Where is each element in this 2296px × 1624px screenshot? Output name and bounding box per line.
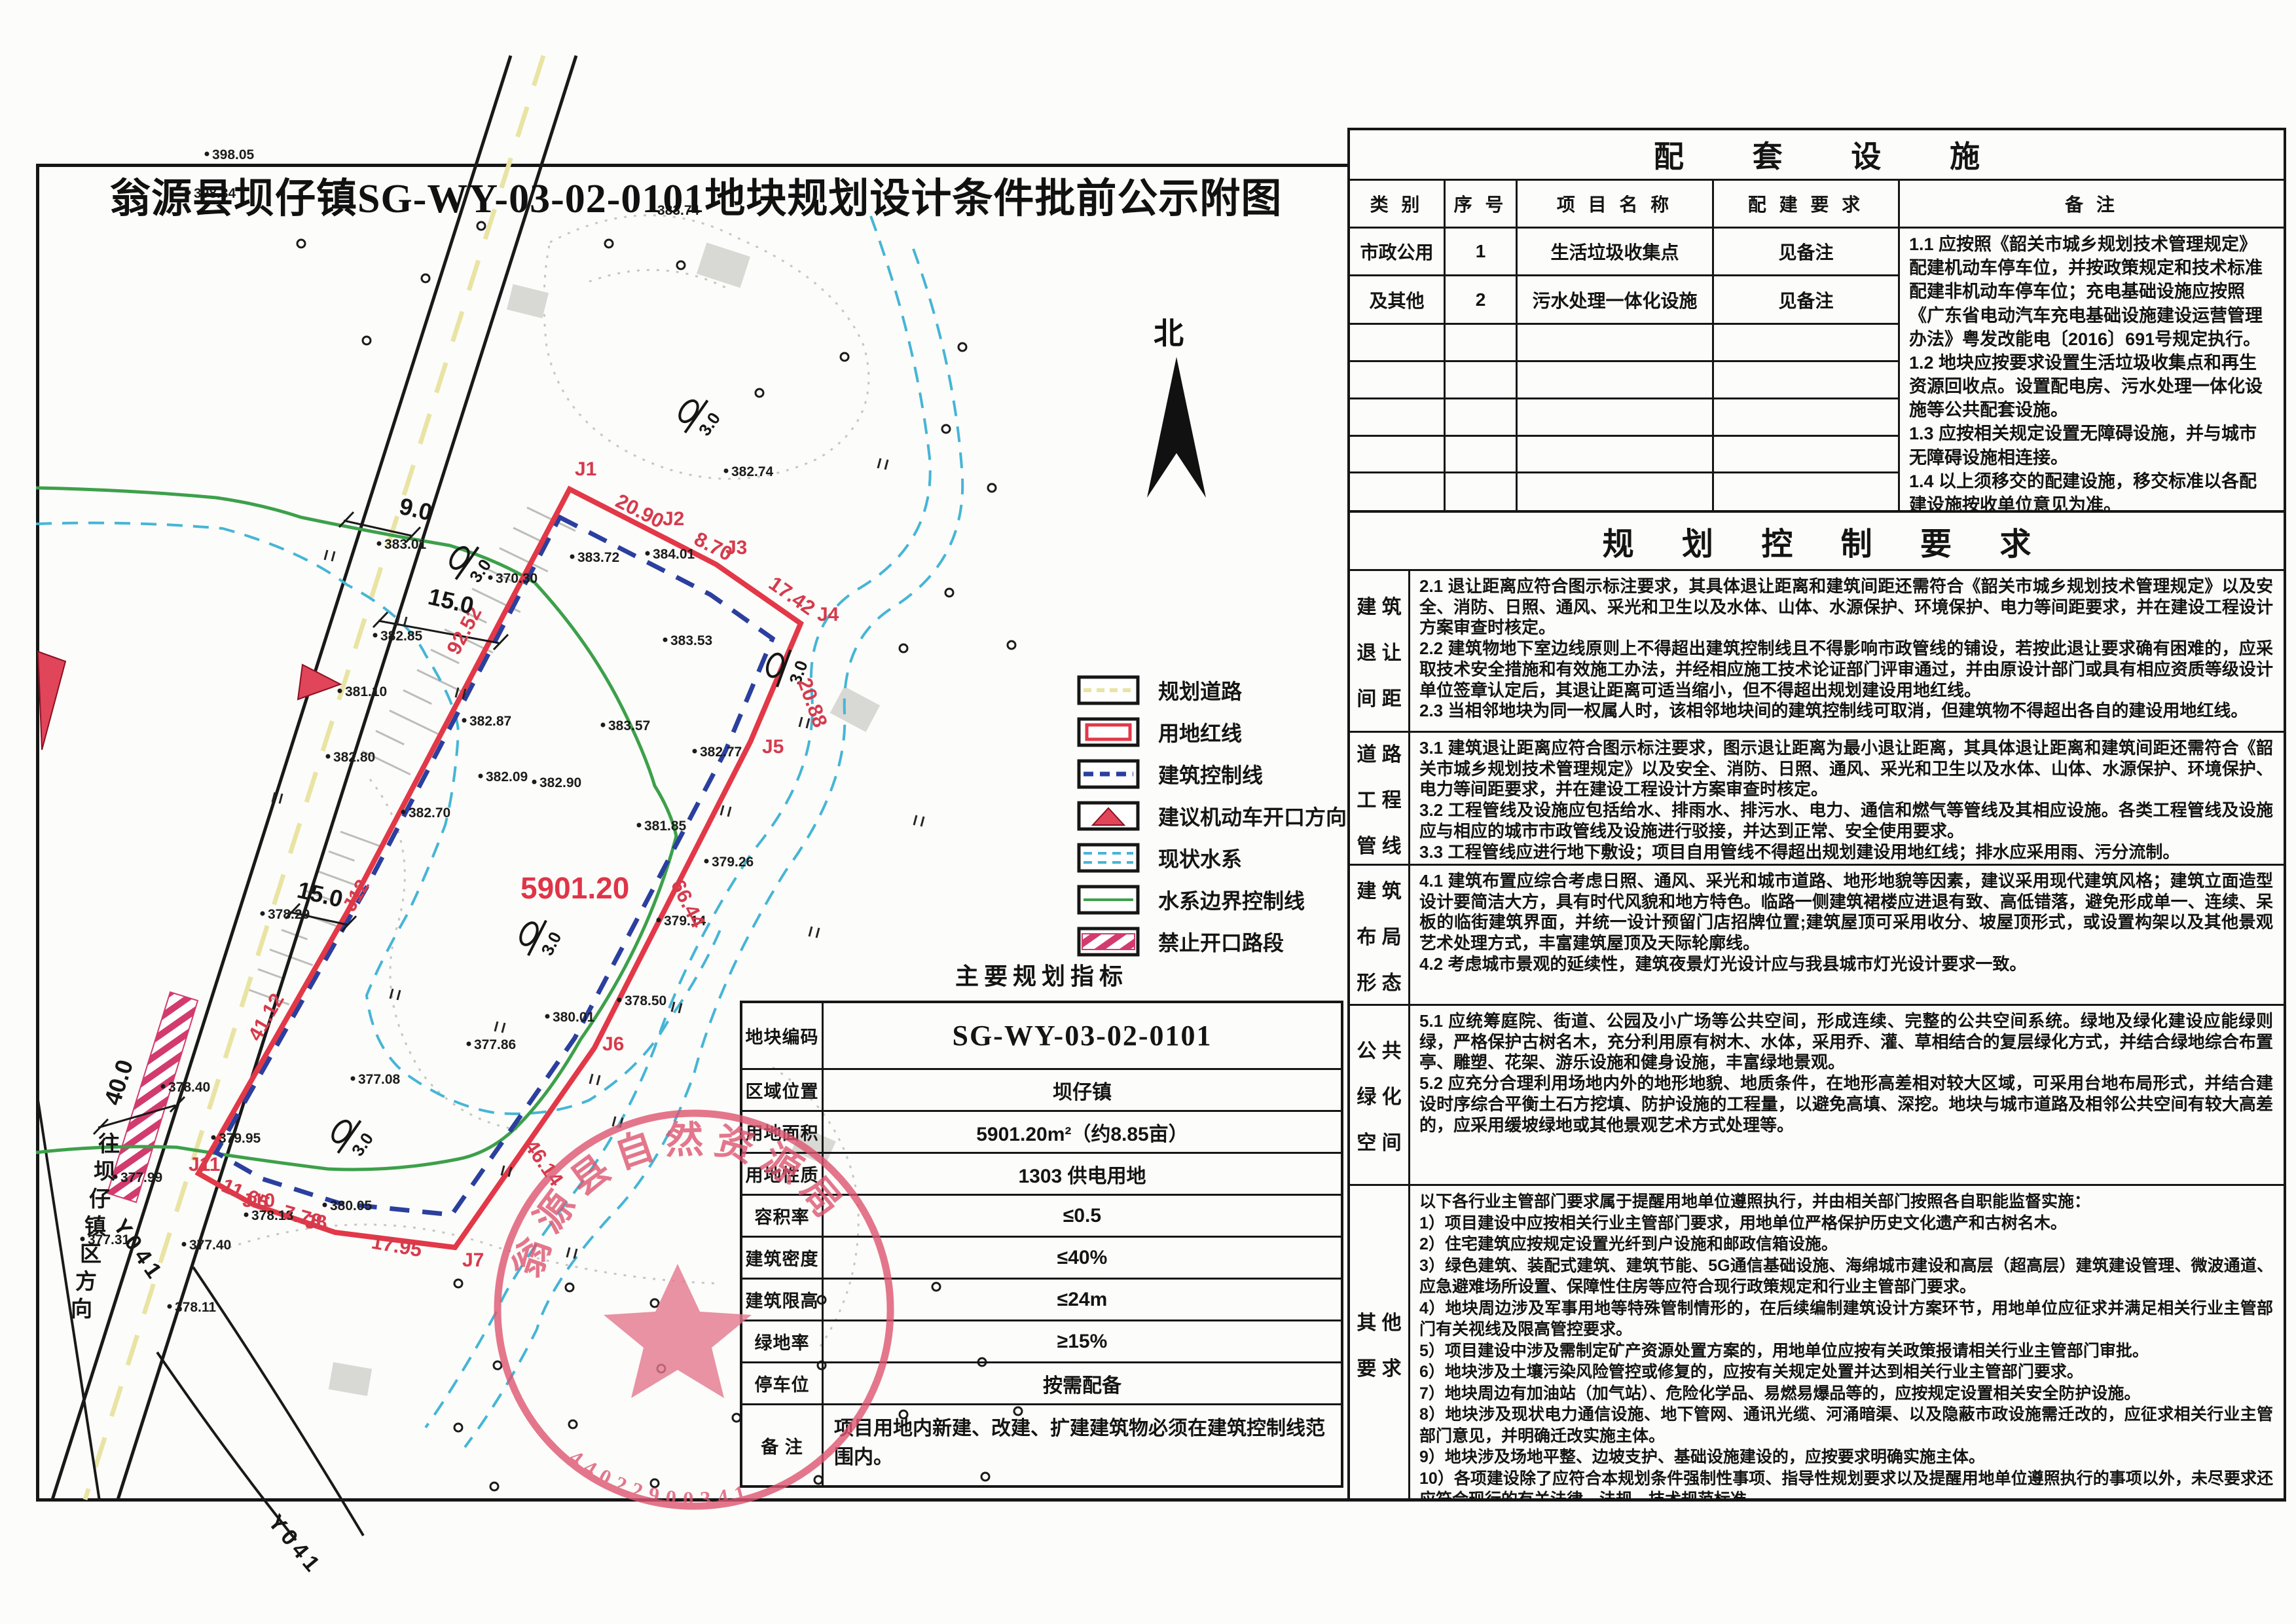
elevation-value: 383.72 <box>577 550 619 565</box>
elevation-value: 382.85 <box>380 629 423 644</box>
survey-dot <box>677 261 685 269</box>
requirement-paragraph: 9）地块涉及场地平整、边坡支护、基础设施建设的，应按要求明确实施主体。 <box>1419 1447 2273 1468</box>
north-label: 北 <box>1154 316 1184 350</box>
elevation-dot <box>570 555 575 559</box>
section-name-line: 管 线 <box>1357 830 1401 858</box>
grass-mark <box>590 1074 600 1085</box>
facility-empty-cell <box>1714 325 1900 362</box>
road-dimension: 9.0 <box>397 492 435 526</box>
setback-tick <box>777 650 791 687</box>
facility-empty-cell <box>1714 362 1900 399</box>
setback-value: 3.0 <box>348 1129 377 1160</box>
legend-label: 建议机动车开口方向 <box>1158 801 1347 831</box>
legend-item: 水系边界控制线 <box>1077 879 1347 921</box>
survey-dot <box>454 1424 462 1431</box>
facility-empty-cell <box>1518 399 1714 437</box>
elevation-dot <box>373 633 378 638</box>
parcel-area-label: 5901.20 <box>520 871 629 905</box>
hatch-symbol <box>1082 934 1135 950</box>
facilities-header: 备 注 <box>1900 181 2284 229</box>
page-title: 翁源县坝仔镇SG-WY-03-02-0101地块规划设计条件批前公示附图 <box>110 165 1354 224</box>
elevation-labels: 398.05398.34383.74382.74383.01383.72384.… <box>81 147 774 1315</box>
requirement-paragraph: 3.1 建筑退让距离应符合图示标注要求，图示退让距离为最小退让距离，其具体退让距… <box>1419 738 2273 800</box>
planned-road <box>38 56 576 1540</box>
elevation-value: 382.87 <box>469 714 511 729</box>
elevation-value: 383.57 <box>608 718 650 733</box>
requirements-table: 建 筑退 让间 距2.1 退让距离应符合图示标注要求，其具体退让距离和建筑间距还… <box>1350 571 2284 1501</box>
facility-name: 污水处理一体化设施 <box>1518 276 1714 325</box>
setback-marker: 3.0 <box>325 1111 381 1167</box>
facilities-notes: 1.1 应按照《韶关市城乡规划技术管理规定》配建机动车停车位，并按政策规定和技术… <box>1900 229 2284 510</box>
setback-marker: 3.0 <box>443 538 499 593</box>
legend-symbol-cyandash <box>1077 842 1140 874</box>
legend-item: 规划道路 <box>1077 669 1347 711</box>
facility-empty-cell <box>1518 437 1714 473</box>
requirement-section-name: 道 路工 程管 线 <box>1350 733 1410 866</box>
bluedash-legend-icon <box>1077 758 1140 790</box>
requirement-paragraph: 2）住宅建筑应按规定设置光纤到户设施和邮政信箱设施。 <box>1419 1234 2273 1255</box>
elevation-dot <box>467 1042 471 1046</box>
setback-value: 3.0 <box>785 658 812 687</box>
facilities-note-paragraph: 1.1 应按照《韶关市城乡规划技术管理规定》配建机动车停车位，并按政策规定和技术… <box>1909 232 2274 351</box>
slope-stroke <box>403 690 431 704</box>
elevation-dot <box>601 723 606 728</box>
requirement-paragraph: 5）项目建设中涉及需制定矿产资源处置方案的，用地单位应按有关政策报请相关行业主管… <box>1419 1340 2273 1362</box>
requirement-section-name: 公 共绿 化空 间 <box>1350 1006 1410 1186</box>
setback-tick <box>528 921 546 955</box>
setback-value: 3.0 <box>695 409 724 439</box>
elevation-value: 370.30 <box>496 571 538 586</box>
section-name-line: 建 筑 <box>1357 875 1401 904</box>
edge-dimension: 66.44 <box>666 876 710 932</box>
slope-stroke <box>500 548 548 572</box>
elevation-dot <box>261 912 265 916</box>
facility-empty-cell <box>1350 399 1446 437</box>
slope-stroke <box>486 568 514 582</box>
survey-dot <box>945 589 953 597</box>
indicator-label: 停车位 <box>742 1363 824 1405</box>
elevation-dot <box>401 810 406 815</box>
elevation-value: 379.26 <box>712 855 754 870</box>
greenline-legend-icon <box>1077 884 1140 915</box>
requirement-paragraph: 2.2 建筑物地下室边线原则上不得超出建筑控制线且不得影响市政管线的铺设，若按此… <box>1419 638 2273 701</box>
section-name-line: 空 间 <box>1357 1126 1401 1155</box>
requirement-paragraph: 10）各项建设除了应符合本规划条件强制性事项、指导性规划要求以及提醒用地单位遵照… <box>1419 1468 2273 1502</box>
slope-hatch <box>246 507 575 1005</box>
elevation-value: 378.18 <box>251 1208 294 1223</box>
vertex-label: J12 <box>338 876 374 915</box>
no-opening-hatch <box>107 992 198 1202</box>
elevation-value: 382.74 <box>731 464 774 479</box>
survey-dot <box>605 240 613 248</box>
svg-text:44022900341: 44022900341 <box>564 1446 756 1512</box>
road-code-label: Y041 <box>263 1510 327 1580</box>
north-arrow: 北 <box>1147 316 1206 498</box>
grass-mark <box>613 1116 623 1128</box>
slope-stroke <box>317 871 360 887</box>
survey-dot <box>494 1361 501 1369</box>
facilities-header: 配 建 要 求 <box>1714 181 1900 229</box>
vertex-label: J5 <box>762 736 784 758</box>
road-dimension: 40.0 <box>99 1056 139 1108</box>
grass-mark <box>272 792 282 803</box>
facility-class: 及其他 <box>1350 276 1446 325</box>
facility-empty-cell <box>1446 325 1518 362</box>
grass-mark <box>914 815 924 826</box>
indicator-label: 容积率 <box>742 1196 824 1238</box>
survey-dot <box>566 1283 574 1291</box>
requirement-paragraph: 3.2 工程管线及设施应包括给水、排雨水、排污水、电力、通信和燃气等管线及其相应… <box>1419 800 2273 841</box>
facility-empty-cell <box>1350 325 1446 362</box>
facilities-note-paragraph: 1.4 以上须移交的配建设施，移交标准以各配建设施按收单位意见为准。 <box>1909 470 2274 517</box>
facility-no: 2 <box>1446 276 1518 325</box>
survey-dot <box>841 353 848 361</box>
grass-mark <box>799 717 809 728</box>
slope-stroke <box>305 891 331 900</box>
facility-empty-cell <box>1350 473 1446 510</box>
requirement-paragraph: 8）地块涉及现状电力通信设施、地下管网、通讯光缆、河涌暗渠、以及隐蔽市政设施需迁… <box>1419 1404 2273 1447</box>
elevation-value: 383.01 <box>384 537 427 552</box>
indicator-label: 用地性质 <box>742 1154 824 1196</box>
slope-stroke <box>417 670 465 693</box>
indicator-value: 按需配备 <box>824 1363 1341 1405</box>
slope-stroke <box>258 969 283 978</box>
indicator-value: ≤0.5 <box>824 1196 1341 1238</box>
section-name-line: 形 态 <box>1357 967 1401 995</box>
dimension-lines <box>94 512 508 1134</box>
setback-value: 3.0 <box>537 929 565 959</box>
legend-symbol-road <box>1077 674 1140 706</box>
elevation-value: 381.10 <box>345 684 387 699</box>
facilities-note-paragraph: 1.3 应按相关规定设置无障碍设施，并与城市无障碍设施相连接。 <box>1909 422 2274 469</box>
survey-dot <box>1008 641 1015 649</box>
requirement-paragraph: 5.1 应统筹庭院、街道、公园及小广场等公共空间，形成连续、完整的公共空间系统。… <box>1419 1011 2273 1073</box>
slope-stroke <box>527 507 575 531</box>
elevation-value: 377.40 <box>189 1238 231 1253</box>
edge-dimension: 17.42 <box>765 572 820 619</box>
facility-req: 见备注 <box>1714 276 1900 325</box>
north-arrow-icon <box>1147 357 1206 498</box>
elevation-value: 377.86 <box>474 1037 516 1052</box>
sheet: 翁源县坝仔镇SG-WY-03-02-0101地块规划设计条件批前公示附图 <box>0 0 2296 1624</box>
elevation-value: 379.14 <box>664 913 706 929</box>
elevation-value: 382.09 <box>486 769 528 784</box>
legend-item: 建议机动车开口方向 <box>1077 795 1347 837</box>
elevation-dot <box>532 780 537 784</box>
elevation-dot <box>182 1242 187 1247</box>
facility-empty-cell <box>1350 362 1446 399</box>
requirements-title: 规 划 控 制 要 求 <box>1350 510 2284 571</box>
requirement-paragraph: 6）地块涉及土壤污染风险管控或修复的，应按有关规定处置并达到相关行业主管部门要求… <box>1419 1361 2273 1383</box>
setback-tick <box>685 400 707 432</box>
facility-empty-cell <box>1446 437 1518 473</box>
elevation-value: 382.70 <box>409 805 450 821</box>
elevation-dot <box>617 998 622 1003</box>
survey-dot <box>958 343 966 351</box>
elevation-value: 379.95 <box>219 1131 261 1146</box>
requirement-section-body: 以下各行业主管部门要求属于提醒用地单位遵照执行，并由相关部门按照各自职能监督实施… <box>1410 1186 2284 1501</box>
requirement-paragraph: 3）绿色建筑、装配式建筑、建筑节能、5G通信基础设施、海绵城市建设和高层（超高层… <box>1419 1255 2273 1298</box>
elevation-dot <box>205 152 210 157</box>
indicator-value: ≤24m <box>824 1280 1341 1321</box>
road-dimension: 15.0 <box>426 583 477 619</box>
direction-char: 坝 <box>94 1159 115 1183</box>
facilities-header: 项 目 名 称 <box>1518 181 1714 229</box>
setback-marker: 3.0 <box>514 913 568 967</box>
slope-stroke <box>458 609 486 623</box>
legend-symbol-bluedash <box>1077 758 1140 790</box>
direction-char: 区 <box>80 1242 101 1266</box>
survey-dot <box>422 274 429 282</box>
elevation-dot <box>488 576 493 580</box>
requirement-section-name: 建 筑布 局形 态 <box>1350 866 1410 1006</box>
setback-marker: 3.0 <box>672 391 728 447</box>
road-dimension: 15.0 <box>295 876 346 913</box>
facility-class: 市政公用 <box>1350 229 1446 276</box>
facility-req: 见备注 <box>1714 229 1900 276</box>
facility-empty-cell <box>1446 399 1518 437</box>
road-legend-icon <box>1077 674 1140 706</box>
legend-symbol-redline <box>1077 716 1140 748</box>
triangle-legend-icon <box>1077 800 1140 832</box>
direction-char: 仔 <box>89 1187 111 1211</box>
slope-stroke <box>431 650 459 663</box>
section-name-line: 道 路 <box>1357 738 1401 767</box>
indicator-label: 地块编码 <box>742 1003 824 1070</box>
indicator-value: 5901.20m²（约8.85亩） <box>824 1112 1341 1154</box>
vertex-label: J3 <box>725 537 747 559</box>
elevation-dot <box>377 542 382 546</box>
facility-empty-cell <box>1518 473 1714 510</box>
slope-stroke <box>246 989 289 1005</box>
direction-char: 向 <box>71 1297 92 1321</box>
slope-stroke <box>282 930 307 939</box>
survey-dot <box>988 484 996 492</box>
elevation-value: 377.08 <box>358 1072 401 1087</box>
road-dimension-labels: 9.015.015.040.0 <box>99 492 477 1109</box>
requirement-paragraph: 5.2 应充分合理利用场地内外的地形地貌、地质条件，在地形高差相对较大区域，可采… <box>1419 1073 2273 1135</box>
indicators-table: 地块编码SG-WY-03-02-0101区域位置坝仔镇用地面积5901.20m²… <box>740 1001 1343 1488</box>
section-name-line: 其 他 <box>1357 1306 1401 1335</box>
section-name-line: 要 求 <box>1357 1352 1401 1381</box>
indicator-label: 备 注 <box>742 1405 824 1485</box>
requirement-paragraph: 以下各行业主管部门要求属于提醒用地单位遵照执行，并由相关部门按照各自职能监督实施… <box>1419 1191 2273 1213</box>
edge-dimension: 8.70 <box>691 527 737 566</box>
legend-label: 现状水系 <box>1158 843 1242 873</box>
elevation-value: 378.50 <box>625 993 666 1008</box>
elevation-value: 382.80 <box>333 750 375 765</box>
facility-empty-cell <box>1446 473 1518 510</box>
direction-char: 往 <box>98 1132 120 1156</box>
vertex-label: J6 <box>602 1033 624 1055</box>
slope-stroke <box>362 751 410 775</box>
grass-mark <box>456 688 465 699</box>
setback-symbol <box>517 920 541 948</box>
setback-symbol <box>447 544 473 572</box>
legend-symbol-frame <box>1079 845 1138 871</box>
elevation-value: 382.90 <box>539 775 581 790</box>
indicator-value: 1303 供电用地 <box>824 1154 1341 1196</box>
survey-dot <box>651 1299 659 1307</box>
section-name-line: 工 程 <box>1357 784 1401 813</box>
building-control-line <box>216 517 773 1215</box>
edge-dimension: 20.90 <box>612 489 668 532</box>
facility-empty-cell <box>1714 473 1900 510</box>
legend: 规划道路用地红线建筑控制线建议机动车开口方向现状水系水系边界控制线禁止开口路段 <box>1077 669 1347 963</box>
indicator-value: SG-WY-03-02-0101 <box>824 1003 1341 1070</box>
grass-mark <box>397 616 407 627</box>
legend-label: 禁止开口路段 <box>1158 927 1284 957</box>
elevation-dot <box>81 1237 85 1242</box>
facility-no: 1 <box>1446 229 1518 276</box>
grass-mark <box>672 1002 682 1013</box>
grass-mark <box>390 989 400 1000</box>
cyandash-legend-icon <box>1077 842 1140 874</box>
elevation-dot <box>479 774 483 779</box>
elevation-value: 377.31 <box>88 1232 130 1247</box>
right-panel: 配 套 设 施 类 别序 号项 目 名 称配 建 要 求备 注市政公用1生活垃圾… <box>1347 128 2286 1501</box>
survey-dot <box>756 389 763 397</box>
indicator-value: ≤40% <box>824 1238 1341 1280</box>
elevation-value: 383.53 <box>670 633 712 648</box>
slope-stroke <box>445 629 493 653</box>
edge-dimension: 7.78 <box>280 1200 325 1233</box>
requirement-section-body: 2.1 退让距离应符合图示标注要求，其具体退让距离和建筑间距还需符合《韶关市城乡… <box>1410 571 2284 733</box>
facility-empty-cell <box>1714 437 1900 473</box>
indicator-label: 区域位置 <box>742 1070 824 1112</box>
section-name-line: 公 共 <box>1357 1035 1401 1063</box>
edge-dimension: 11.65 <box>218 1173 273 1215</box>
survey-dot <box>490 1483 498 1490</box>
elevation-dot <box>326 754 331 759</box>
survey-dot <box>651 1479 659 1487</box>
elevation-dot <box>693 749 697 754</box>
slope-stroke <box>513 528 541 542</box>
section-name-line: 布 局 <box>1357 921 1401 950</box>
elevation-value: 384.01 <box>653 547 695 562</box>
legend-symbol-triangle <box>1077 800 1140 832</box>
elevation-dot <box>545 1014 550 1019</box>
slope-stroke <box>329 851 354 860</box>
elevation-value: 398.05 <box>212 147 255 162</box>
vertex-label: J7 <box>462 1249 484 1271</box>
requirement-section-body: 5.1 应统筹庭院、街道、公园及小广场等公共空间，形成连续、完整的公共空间系统。… <box>1410 1006 2284 1186</box>
elevation-dot <box>211 1135 216 1140</box>
requirement-section-body: 4.1 建筑布置应综合考虑日照、通风、采光和城市道路、地形地貌等因素，建议采用现… <box>1410 866 2284 1006</box>
setback-symbol <box>676 397 702 425</box>
vertex-label: J2 <box>663 508 684 530</box>
grass-mark <box>878 458 888 470</box>
setback-symbol <box>329 1118 355 1145</box>
vertex-label: J8 <box>305 1211 327 1233</box>
grass-mark <box>495 1022 505 1033</box>
legend-item: 现状水系 <box>1077 837 1347 879</box>
facilities-note-paragraph: 1.2 地块应按要求设置生活垃圾收集点和再生资源回收点。设置配电房、污水处理一体… <box>1909 351 2274 422</box>
elevation-value: 378.40 <box>168 1080 210 1095</box>
legend-item: 禁止开口路段 <box>1077 921 1347 963</box>
indicator-label: 建筑限高 <box>742 1280 824 1321</box>
grass-mark <box>325 550 335 561</box>
vertex-label: J1 <box>575 458 596 480</box>
indicator-value: ≥15% <box>824 1321 1341 1363</box>
elevation-dot <box>663 638 668 642</box>
section-name-line: 绿 化 <box>1357 1080 1401 1109</box>
elevation-dot <box>351 1077 355 1081</box>
survey-dot <box>942 425 950 433</box>
elevation-value: 381.85 <box>644 819 687 834</box>
requirement-paragraph: 3.3 工程管线应进行地下敷设；项目自用管线不得超出规划建设用地红线；排水应采用… <box>1419 842 2273 863</box>
elevation-dot <box>637 823 642 828</box>
elevation-value: 378.11 <box>175 1300 216 1315</box>
requirement-section-name: 其 他要 求 <box>1350 1186 1410 1501</box>
setback-tick <box>338 1120 360 1153</box>
redline-legend-icon <box>1077 716 1140 748</box>
hatch-legend-icon <box>1077 926 1140 957</box>
survey-dot <box>569 1420 577 1428</box>
elevation-dot <box>704 859 709 864</box>
section-name-line: 间 距 <box>1357 682 1401 711</box>
facility-empty-cell <box>1714 399 1900 437</box>
grass-mark <box>501 1166 511 1177</box>
indicator-label: 建筑密度 <box>742 1238 824 1280</box>
requirement-paragraph: 2.3 当相邻地块为同一权属人时，该相邻地块间的建筑控制线可取消，但建筑物不得超… <box>1419 701 2273 722</box>
edge-dimension: 20.88 <box>793 674 831 730</box>
facilities-title: 配 套 设 施 <box>1350 130 2284 181</box>
requirement-paragraph: 7）地块周边有加油站（加气站）、危险化学品、易燃易爆品等的，应按规定设置相关安全… <box>1419 1383 2273 1405</box>
direction-char: 镇 <box>84 1214 106 1238</box>
vertex-label: J11 <box>189 1154 220 1175</box>
frame-left <box>36 164 39 1501</box>
survey-dot <box>657 1365 665 1373</box>
survey-dot <box>454 1280 462 1287</box>
road-code-label: Y041 <box>108 1215 169 1287</box>
section-name-line: 建 筑 <box>1357 591 1401 619</box>
legend-label: 建筑控制线 <box>1158 759 1263 789</box>
grass-mark <box>567 1247 577 1259</box>
elevation-value: 380.01 <box>553 1010 595 1025</box>
grass-mark <box>721 805 731 817</box>
setback-value: 3.0 <box>465 555 495 586</box>
requirement-paragraph: 1）项目建设中应按相关行业主管部门要求，用地单位严格保护历史文化遗产和古树名木。 <box>1419 1213 2273 1234</box>
elevation-dot <box>168 1304 172 1309</box>
elevation-dot <box>462 718 467 723</box>
elevation-dot <box>657 918 661 923</box>
section-name-line: 退 让 <box>1357 637 1401 665</box>
edge-dimension: 46.14 <box>520 1135 568 1190</box>
slope-stroke <box>390 710 438 734</box>
elevation-dot <box>338 689 342 693</box>
requirement-paragraph: 2.1 退让距离应符合图示标注要求，其具体退让距离和建筑间距还需符合《韶关市城乡… <box>1419 576 2273 638</box>
indicator-label: 绿地率 <box>742 1321 824 1363</box>
elevation-value: 378.29 <box>268 907 310 922</box>
direction-char: 方 <box>75 1269 97 1293</box>
slope-stroke <box>340 832 384 847</box>
facility-empty-cell <box>1350 437 1446 473</box>
facilities-header: 类 别 <box>1350 181 1446 229</box>
legend-item: 建筑控制线 <box>1077 753 1347 795</box>
edge-dimension: 41.12 <box>244 989 289 1045</box>
elevation-dot <box>724 469 729 473</box>
slope-stroke <box>376 731 404 745</box>
slope-stroke <box>472 589 520 612</box>
facility-empty-cell <box>1446 362 1518 399</box>
vehicle-opening-triangle <box>298 665 340 699</box>
grass-mark <box>809 927 819 938</box>
survey-dot <box>900 644 907 652</box>
elevation-dot <box>323 1203 327 1208</box>
indicator-value: 坝仔镇 <box>824 1070 1341 1112</box>
requirement-section-body: 3.1 建筑退让距离应符合图示标注要求，图示退让距离为最小退让距离，其具体退让距… <box>1410 733 2284 866</box>
